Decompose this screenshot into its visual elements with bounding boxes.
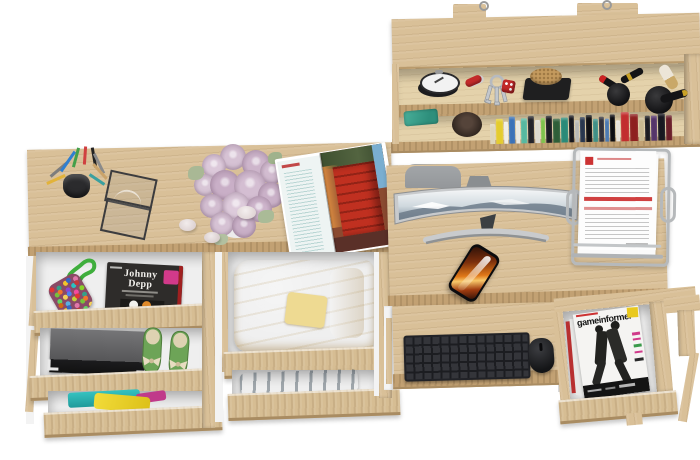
leaf xyxy=(188,166,204,180)
desk-side-panel xyxy=(677,310,696,357)
shelf-side-panel xyxy=(392,64,399,144)
book-spine xyxy=(504,122,508,144)
mouse xyxy=(528,337,555,374)
book-spine xyxy=(599,117,605,142)
book-spine xyxy=(616,120,620,141)
storage-box xyxy=(49,328,146,375)
book-spine xyxy=(541,118,546,143)
tray-handle xyxy=(660,187,677,223)
pebble xyxy=(204,232,220,243)
cork-coaster-tray xyxy=(522,66,572,100)
yellow-badge xyxy=(627,307,639,318)
book-spine xyxy=(509,117,516,144)
document-paper xyxy=(580,151,656,250)
book-spine xyxy=(639,118,644,141)
shelf-top-board xyxy=(391,13,700,71)
book-spine xyxy=(610,114,616,141)
tray-side-rail xyxy=(386,318,392,384)
book-spine xyxy=(561,117,569,142)
document-tray xyxy=(571,147,665,265)
magazine-stack: gameinformer xyxy=(565,307,652,400)
shirt-pocket xyxy=(284,292,328,329)
book-spine xyxy=(666,115,673,140)
leaf xyxy=(258,210,274,223)
drawer-divider-rail xyxy=(202,252,215,428)
wooden-bowl xyxy=(452,112,482,137)
book-spine xyxy=(553,119,561,143)
book-spine xyxy=(575,120,579,142)
alarm-clock xyxy=(416,70,460,98)
book-spine xyxy=(535,120,540,143)
rose-bouquet xyxy=(194,144,286,244)
book-spine xyxy=(621,112,630,141)
book-spine xyxy=(521,118,528,143)
dice-keychain xyxy=(501,79,516,94)
gameinformer-magazine: gameinformer xyxy=(573,306,650,400)
open-magazine xyxy=(275,142,402,262)
powder-brush xyxy=(607,83,630,106)
book-spine xyxy=(645,116,651,141)
book-row xyxy=(490,108,689,144)
pen xyxy=(83,146,87,164)
pebble xyxy=(237,206,256,219)
pink-badge xyxy=(163,270,179,285)
pen-cup xyxy=(44,152,106,216)
book-spine xyxy=(593,119,598,142)
drawer-leg xyxy=(626,412,643,425)
scroll-wheel-icon xyxy=(539,343,543,351)
book-spine xyxy=(658,113,666,140)
book-spine xyxy=(516,120,520,143)
book-spine xyxy=(651,116,658,141)
book-spine xyxy=(630,114,639,141)
pebble xyxy=(179,219,196,231)
curved-monitor xyxy=(392,176,580,250)
book-spine xyxy=(586,115,593,142)
book-spine xyxy=(490,124,495,144)
book-spine xyxy=(496,119,504,144)
cup xyxy=(63,174,90,198)
scene: Johnny Depp xyxy=(0,0,700,460)
book-spine xyxy=(569,115,575,142)
johnny-depp-title: Johnny Depp xyxy=(118,269,163,291)
bracket-loop-icon xyxy=(602,0,612,10)
yellow-shirt xyxy=(234,260,374,352)
pompom-dot xyxy=(79,284,86,291)
keyboard xyxy=(403,332,530,381)
book-spine xyxy=(605,119,609,142)
book-spine xyxy=(546,116,553,143)
book-spine xyxy=(528,116,535,143)
teal-pouch xyxy=(403,109,438,127)
bracket-loop-icon xyxy=(479,1,489,11)
book-spine xyxy=(580,117,586,142)
